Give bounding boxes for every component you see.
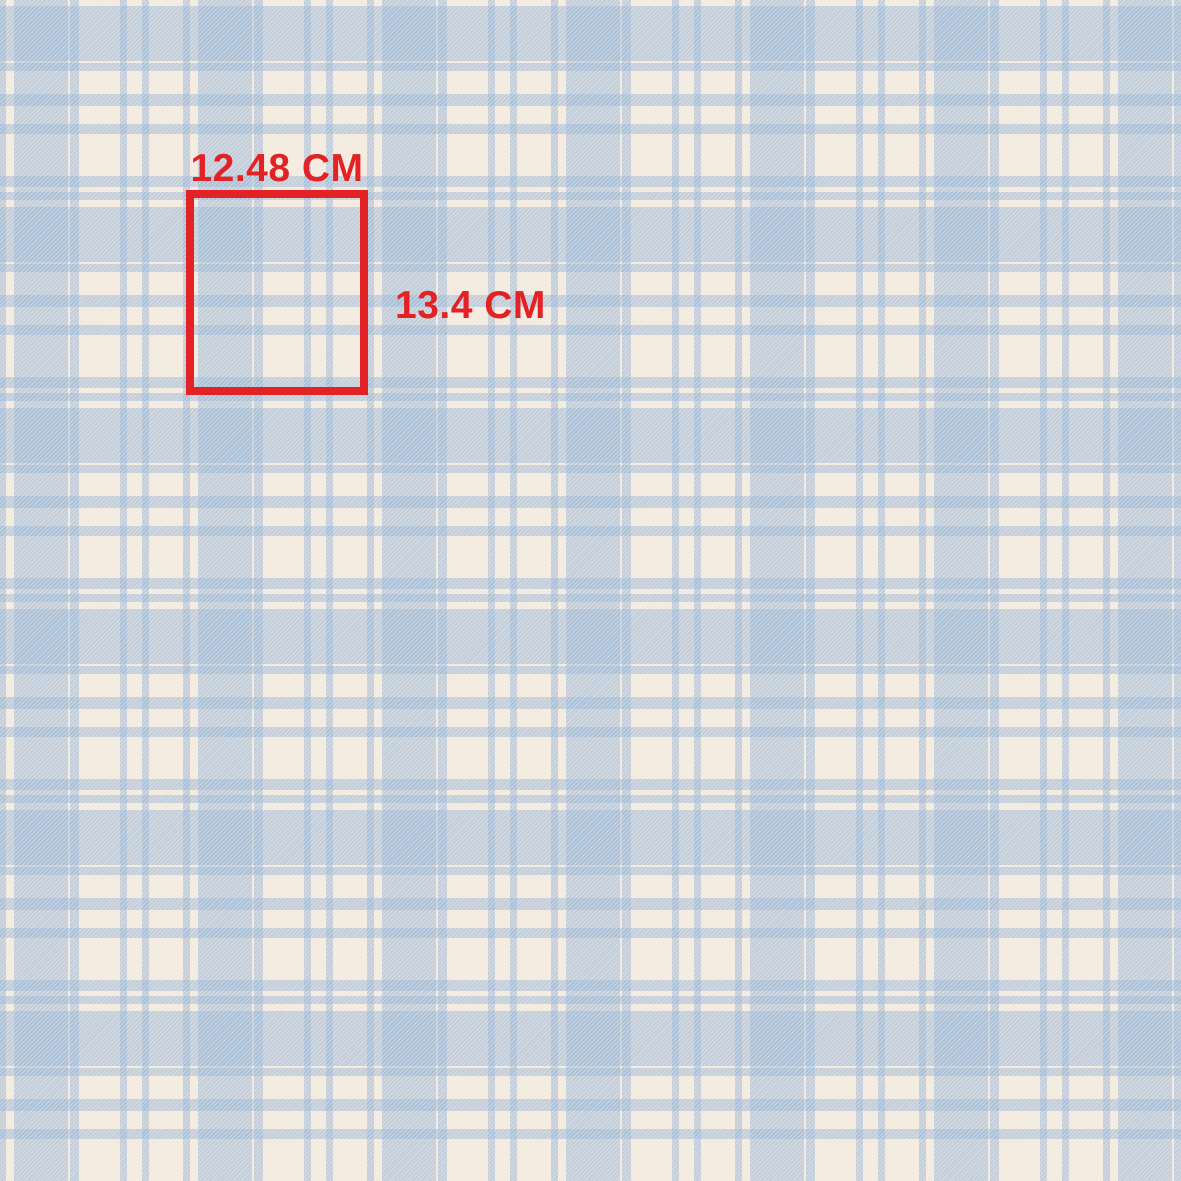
- plaid-pattern-background: [0, 0, 1181, 1181]
- width-dimension-label: 12.48 CM: [190, 149, 363, 188]
- measurement-rectangle: [186, 190, 368, 395]
- height-dimension-label: 13.4 CM: [395, 286, 546, 325]
- fabric-swatch: 12.48 CM 13.4 CM: [0, 0, 1181, 1181]
